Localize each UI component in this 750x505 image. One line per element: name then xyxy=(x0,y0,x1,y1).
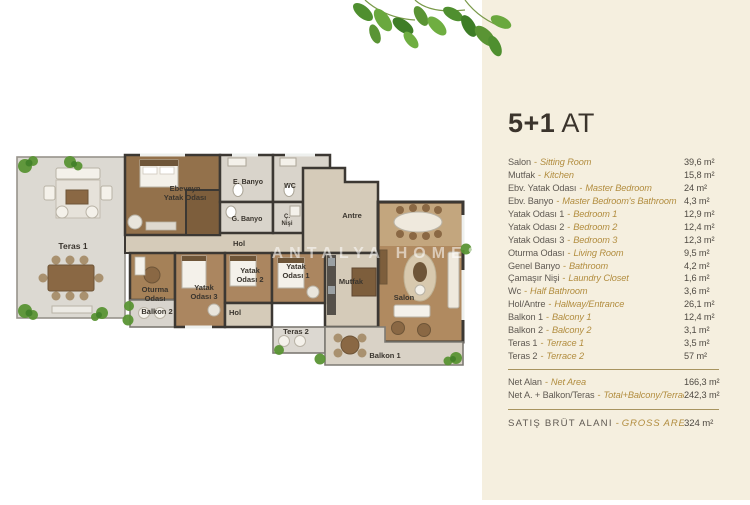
label-c-nisi-1: Ç. xyxy=(284,214,290,220)
divider-top xyxy=(508,369,719,370)
legend-row-yatak-2: Yatak Odası 2-Bedroom 212,4 m² xyxy=(508,222,726,235)
label-g-banyo: G. Banyo xyxy=(232,216,263,223)
legend-row-balkon-1: Balkon 1-Balcony 112,4 m² xyxy=(508,312,726,325)
label-hol-2: Hol xyxy=(229,308,241,317)
legend-totals: Net Alan-Net Area166,3 m² Net A. + Balko… xyxy=(508,377,726,404)
legend-panel: 5+1AT Salon-Sitting Room39,6 m² Mutfak-K… xyxy=(482,0,750,500)
watermark: ANTALYA HOMES xyxy=(272,245,482,262)
label-c-nisi-2: Nişi xyxy=(281,221,292,227)
legend-row-yatak-1: Yatak Odası 1-Bedroom 112,9 m² xyxy=(508,209,726,222)
label-yatak2-1: Yatak xyxy=(240,266,260,275)
label-master-1: Ebeveyn xyxy=(170,184,201,193)
legend-row-salon: Salon-Sitting Room39,6 m² xyxy=(508,157,726,170)
legend-row-mutfak: Mutfak-Kitchen15,8 m² xyxy=(508,170,726,183)
floor-plan-svg: ANTALYA HOMES Teras 1 Ebeveyn Yatak Odas… xyxy=(0,0,482,500)
label-e-banyo: E. Banyo xyxy=(233,179,263,186)
label-teras-2: Teras 2 xyxy=(283,327,309,336)
legend-row-ebv-banyo: Ebv. Banyo-Master Bedroom's Bathroom4,3 … xyxy=(508,196,726,209)
divider-bottom xyxy=(508,409,719,410)
label-yatak1-2: Odası 1 xyxy=(282,271,309,280)
label-teras-1: Teras 1 xyxy=(58,241,87,251)
label-master-2: Yatak Odası xyxy=(164,193,207,202)
legend-row-genel-banyo: Genel Banyo-Bathroom4,2 m² xyxy=(508,261,726,274)
legend-row-teras-1: Teras 1-Terrace 13,5 m² xyxy=(508,338,726,351)
legend-row-gross-area: SATIŞ BRÜT ALANI-GROSS AREA324 m² xyxy=(508,418,726,432)
label-yatak2-2: Odası 2 xyxy=(236,275,263,284)
legend-row-teras-2: Teras 2-Terrace 257 m² xyxy=(508,351,726,364)
plan-title-type: 5+1 xyxy=(508,108,555,138)
plan-title: 5+1AT xyxy=(508,108,726,143)
label-mutfak: Mutfak xyxy=(339,277,364,286)
label-oturma-1: Oturma xyxy=(142,285,170,294)
legend-rows: Salon-Sitting Room39,6 m² Mutfak-Kitchen… xyxy=(508,157,726,364)
label-hol: Hol xyxy=(233,239,245,248)
label-yatak1-1: Yatak xyxy=(286,262,306,271)
room-salon xyxy=(378,202,463,342)
room-antre xyxy=(303,168,378,253)
room-teras-1 xyxy=(17,157,125,318)
legend-row-yatak-3: Yatak Odası 3-Bedroom 312,3 m² xyxy=(508,235,726,248)
legend-row-oturma: Oturma Odası-Living Room9,5 m² xyxy=(508,248,726,261)
legend-row-balkon-2: Balkon 2-Balcony 23,1 m² xyxy=(508,325,726,338)
legend-row-hol-antre: Hol/Antre-Hallway/Entrance26,1 m² xyxy=(508,299,726,312)
label-oturma-2: Odası xyxy=(145,294,166,303)
plan-title-suffix: AT xyxy=(561,108,595,138)
label-balkon-2: Balkon 2 xyxy=(141,307,172,316)
legend-row-camasir: Çamaşır Nişi-Laundry Closet1,6 m² xyxy=(508,273,726,286)
label-wc: WC xyxy=(284,183,296,190)
legend-gross: SATIŞ BRÜT ALANI-GROSS AREA324 m² xyxy=(508,418,726,432)
legend-row-ebv-yatak: Ebv. Yatak Odası-Master Bedroom24 m² xyxy=(508,183,726,196)
legend-row-net-area: Net Alan-Net Area166,3 m² xyxy=(508,377,726,390)
room-mutfak xyxy=(325,253,378,327)
label-balkon-1: Balkon 1 xyxy=(369,351,400,360)
label-yatak3-2: Odası 3 xyxy=(190,292,217,301)
floor-plan: ANTALYA HOMES Teras 1 Ebeveyn Yatak Odas… xyxy=(0,0,482,500)
label-salon: Salon xyxy=(394,293,415,302)
leaves-decoration xyxy=(345,0,515,62)
label-antre: Antre xyxy=(342,211,362,220)
label-yatak3-1: Yatak xyxy=(194,283,214,292)
legend-row-net-total: Net A. + Balkon/Teras-Total+Balcony/Terr… xyxy=(508,390,726,403)
legend-row-wc: Wc-Half Bathroom3,6 m² xyxy=(508,286,726,299)
